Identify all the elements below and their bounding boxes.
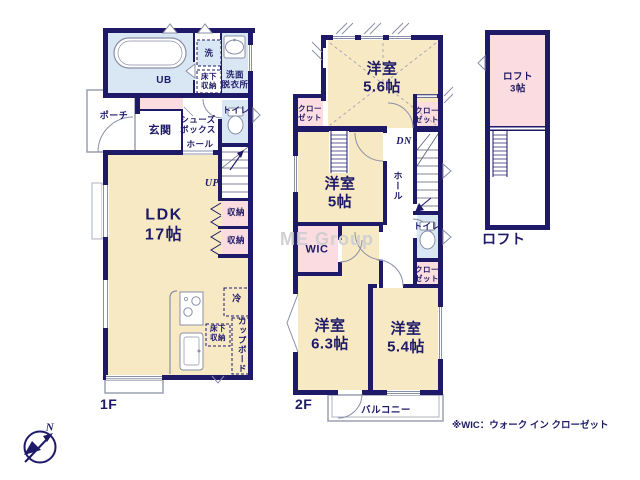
stairs-down-treads: [417, 134, 438, 206]
label-washroom: 洗面 脱衣所: [221, 70, 248, 91]
label-storage-a: 収納: [227, 207, 245, 217]
terrace-step: [105, 380, 163, 393]
label-fridge: 冷: [232, 294, 242, 305]
loft-plan: [478, 30, 550, 230]
label-porch: ポーチ: [100, 111, 129, 122]
label-hall-2f: ホール: [393, 171, 402, 201]
label-closet-tr: クロー ゼット: [415, 106, 439, 124]
loft-access-ladder-icon: [491, 131, 509, 177]
label-cupboard: カップボード: [238, 317, 247, 374]
north-arrow-icon: [24, 432, 56, 463]
label-bedroom-5: 洋室 5帖: [324, 176, 355, 213]
label-loft-room: ロフト 3帖: [503, 71, 533, 94]
label-closet-mid: クロー ゼット: [415, 265, 439, 283]
top-awning-windows: [333, 23, 411, 40]
label-floor2: 2F: [295, 396, 312, 413]
label-hall-1f: ホール: [186, 139, 213, 149]
label-loft: ロフト: [482, 231, 526, 248]
floorplan-page: ポーチ 玄関 シューズ ボックス ホール UB 洗 床下 収納 洗面 脱衣所 ト…: [0, 0, 640, 480]
label-entrance: 玄関: [149, 124, 172, 137]
label-toilet-2f: トイレ: [413, 221, 440, 231]
label-toilet-1f: トイレ: [222, 105, 249, 115]
label-storage-b: 収納: [227, 235, 245, 245]
wic-note: ※WIC：ウォーク イン クローゼット: [452, 417, 608, 431]
label-bedroom-63: 洋室 6.3帖: [311, 318, 349, 355]
window-triangle-icon: [478, 56, 485, 70]
label-ldk: LDK 17帖: [145, 205, 183, 244]
label-unit-bath: UB: [156, 75, 171, 87]
label-stairs-up: UP: [205, 178, 219, 190]
window-triangle-icon: [443, 164, 451, 178]
label-stairs-down: DN: [396, 136, 411, 148]
shutter-box: [92, 183, 102, 239]
label-floor1: 1F: [100, 396, 117, 413]
label-bedroom-54: 洋室 5.4帖: [387, 321, 425, 358]
watermark: ME Group: [280, 229, 374, 250]
label-underfloor-storage: 床下 収納: [201, 72, 217, 90]
label-shoe-box: シューズ ボックス: [180, 115, 216, 136]
window-triangle-icon: [253, 108, 260, 122]
label-compass-north: N: [46, 421, 54, 434]
label-bedroom-56: 洋室 5.6帖: [363, 61, 401, 98]
stove-icon: [180, 292, 203, 325]
loft-ladder-icon: [329, 131, 349, 173]
label-balcony: バルコニー: [361, 405, 411, 417]
label-washer: 洗: [204, 48, 213, 58]
label-kitchen-underfloor-storage: 床下 収納: [210, 324, 226, 342]
label-closet-tl: クロー ゼット: [298, 104, 322, 122]
window-triangle-icon: [443, 230, 451, 244]
